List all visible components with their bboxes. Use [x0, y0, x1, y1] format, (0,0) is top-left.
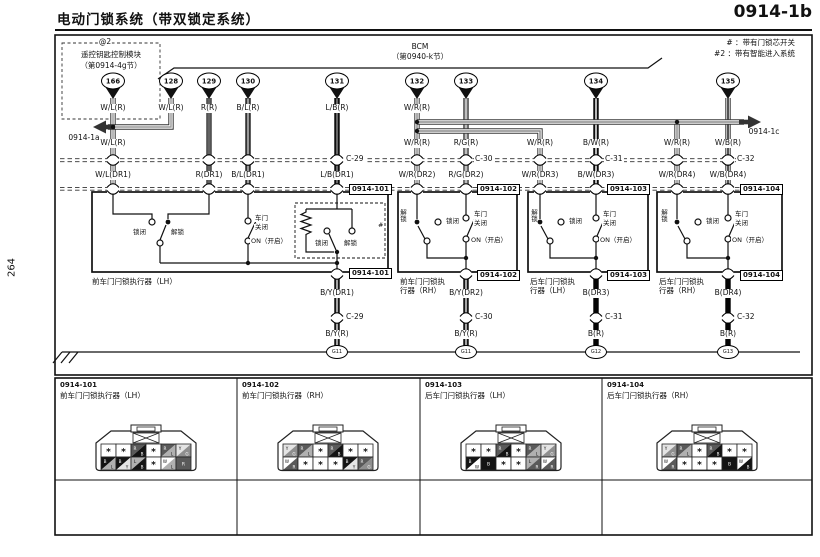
connector-pin-cell: * [466, 444, 481, 458]
wire-label: B/W(R) [582, 139, 610, 148]
connector-pin-cell: * [358, 444, 373, 458]
svg-text:W: W [739, 459, 743, 464]
actuator-caption-4b: 行器（RH） [659, 285, 700, 296]
door-switch-label: 关闭 [734, 220, 749, 227]
ground-point: G13 [717, 345, 739, 359]
connector-label: C-32 [736, 313, 756, 322]
switch-label-unlock: 解锁 [530, 209, 537, 222]
pin-129: 129 [197, 73, 221, 90]
connector-pin-cell: * [692, 457, 707, 471]
svg-text:*: * [727, 448, 732, 458]
inline-connector-icon [590, 269, 602, 280]
wire-label: W/R(R) [526, 139, 554, 148]
actuator-tag-top-2: 0914-102 [477, 184, 520, 195]
wire-label: B/Y(R) [324, 330, 349, 339]
connector-pin-cell: * [511, 457, 526, 471]
wire-label: W/B(DR4) [709, 171, 748, 180]
svg-text:W: W [475, 465, 479, 470]
pinout-name-3: 后车门闩锁执行器（LH） [425, 390, 510, 401]
connector-pin-cell: * [511, 444, 526, 458]
connector-pin-cell: WR [662, 457, 677, 470]
door-switch-label: 车门 [602, 211, 617, 218]
pin-133: 133 [454, 73, 478, 90]
switch-label-unlock: 解锁 [399, 209, 406, 222]
connector-pin-cell: * [692, 444, 707, 458]
pin-166: 166 [101, 73, 125, 90]
wire-label: R(DR1) [195, 171, 224, 180]
pinout-name-2: 前车门闩锁执行器（RH） [242, 390, 328, 401]
svg-text:G: G [367, 465, 370, 470]
wire-label: B(R) [719, 330, 737, 339]
connector-pin-cell: RB [328, 444, 343, 457]
pin-connector-triangle-icon [410, 88, 424, 99]
svg-text:B: B [469, 459, 472, 464]
svg-text:*: * [471, 448, 476, 458]
connector-pin-cell: LB [131, 457, 146, 470]
connector-pin-cell: B [481, 457, 496, 470]
connector-pin-cell: WR [283, 457, 298, 470]
pin-134: 134 [584, 73, 608, 90]
wire-label: W/R(DR4) [658, 171, 697, 180]
actuator-caption-3b: 行器（LH） [530, 285, 570, 296]
wire-label: B/Y(DR2) [448, 289, 484, 298]
svg-text:*: * [712, 461, 717, 471]
inline-connector-icon [411, 155, 423, 166]
svg-text:*: * [151, 448, 156, 458]
wire-label: W/R(DR3) [521, 171, 560, 180]
junction-dot [675, 120, 679, 124]
pin-connector-triangle-icon [241, 88, 255, 99]
inline-connector-icon [722, 269, 734, 280]
wire-label: R/G(R) [453, 139, 480, 148]
door-switch-label: 关闭 [473, 220, 488, 227]
legend-line-1: # ：带有门锁芯开关 [726, 37, 795, 48]
pin-connector-triangle-icon [459, 88, 473, 99]
inline-connector-icon [534, 155, 546, 166]
wire-label: L/B(DR1) [319, 171, 354, 180]
connector-pin-cell: BY [116, 457, 131, 470]
actuator-tag-bottom-2: 0914-102 [477, 270, 520, 281]
connector-label: C-31 [604, 155, 624, 164]
svg-text:Y: Y [285, 446, 289, 451]
svg-text:W: W [543, 459, 547, 464]
wire-label: W/L(DR1) [94, 171, 132, 180]
svg-text:*: * [363, 448, 368, 458]
connector-pin-cell: YG [541, 444, 556, 457]
svg-text:*: * [121, 448, 126, 458]
wire-label: W/R(R) [403, 104, 431, 113]
connector-pin-cell: * [313, 444, 328, 458]
junction-dot [726, 256, 730, 260]
svg-text:B: B [487, 462, 490, 468]
connector-diagram-3: **RB*RLYGBWB**LRWR [451, 424, 571, 474]
wire-label: W/L(R) [99, 139, 126, 148]
svg-text:*: * [318, 448, 323, 458]
connector-pin-cell: BL [101, 457, 116, 470]
connector-pin-cell: RB [131, 444, 146, 457]
pinout-name-1: 前车门闩锁执行器（LH） [60, 390, 145, 401]
wire-label: W/B(R) [714, 139, 742, 148]
svg-text:*: * [516, 448, 521, 458]
pin-connector-triangle-icon [106, 88, 120, 99]
connector-pin-cell: RB [707, 444, 722, 457]
bcm-section: （第0940-k节） [391, 53, 449, 62]
actuator-box-3 [528, 192, 648, 272]
connector-pin-cell: B [722, 457, 737, 470]
pinout-code-3: 0914-103 [425, 381, 462, 389]
actuator-caption-2b: 行器（RH） [400, 285, 441, 296]
junction-dot [594, 256, 598, 260]
svg-text:*: * [501, 461, 506, 471]
connector-pin-cell: * [146, 457, 161, 471]
svg-text:G: G [292, 452, 295, 457]
wire-label: B/W(DR3) [577, 171, 616, 180]
door-switch-label: 车门 [473, 211, 488, 218]
junction-dot [246, 261, 250, 265]
ref-right: 0914-1c [748, 128, 781, 137]
pinout-code-1: 0914-101 [60, 381, 97, 389]
inline-connector-icon [107, 184, 119, 195]
pin-128: 128 [159, 73, 183, 90]
door-switch-label: ON（开启） [731, 237, 769, 244]
title-underline [55, 29, 812, 31]
wire-label: L/B(R) [325, 104, 350, 113]
actuator-3-circuit [538, 192, 604, 272]
svg-text:R: R [499, 446, 502, 451]
svg-text:R: R [529, 446, 532, 451]
svg-text:B: B [141, 452, 144, 457]
remote-module-name: 遥控钥匙控制模块 [80, 51, 142, 60]
connector-label: C-29 [345, 313, 365, 322]
ref-left: 0914-1a [67, 134, 100, 143]
wire-label: B/Y(R) [453, 330, 478, 339]
wire-label: B/L(R) [236, 104, 261, 113]
svg-text:*: * [151, 461, 156, 471]
connector-pin-cell: * [298, 457, 313, 471]
svg-text:B: B [141, 465, 144, 470]
svg-text:R: R [301, 446, 304, 451]
svg-text:B: B [506, 452, 509, 457]
key-switch-label-unlock: 解锁 [343, 240, 358, 247]
svg-text:R: R [672, 465, 675, 470]
wire-label: W/R(DR2) [398, 171, 437, 180]
connector-pin-cell: * [101, 444, 116, 458]
door-switch-label: ON（开启） [250, 238, 288, 245]
connector-pin-cell: BY [343, 457, 358, 470]
svg-text:*: * [697, 448, 702, 458]
page-code: 0914-1b [734, 2, 812, 22]
connector-pin-cell: * [737, 444, 752, 458]
svg-text:*: * [318, 461, 323, 471]
connector-pin-cell: RL [677, 444, 692, 457]
inline-connector-icon [203, 155, 215, 166]
connector-pin-cell: YG [662, 444, 677, 457]
inline-connector-icon [411, 184, 423, 195]
svg-text:R: R [551, 465, 554, 470]
ground-point: G11 [455, 345, 477, 359]
inline-connector-symbols [107, 155, 734, 324]
connector-pin-cell: * [146, 444, 161, 458]
junction-dot [335, 261, 339, 265]
connector-pin-cell: LR [526, 457, 541, 470]
hash-mark: # [377, 222, 384, 229]
svg-text:*: * [486, 448, 491, 458]
inline-connector-icon [331, 155, 343, 166]
svg-text:B: B [717, 452, 720, 457]
ground-point: G12 [585, 345, 607, 359]
svg-text:Y: Y [352, 465, 356, 470]
wire-label: W/R(R) [663, 139, 691, 148]
svg-text:R: R [331, 446, 334, 451]
switch-label-lock: 锁闭 [568, 218, 583, 225]
actuator-tag-top-4: 0914-104 [740, 184, 783, 195]
door-switch-label: 关闭 [254, 224, 269, 231]
switch-label-lock: 锁闭 [445, 218, 460, 225]
door-switch-label: ON（开启） [599, 237, 637, 244]
svg-text:G: G [550, 452, 553, 457]
inline-connector-icon [460, 184, 472, 195]
svg-text:G: G [671, 452, 674, 457]
pin-131: 131 [325, 73, 349, 90]
connector-pin-cell: YG [283, 444, 298, 457]
pinout-code-2: 0914-102 [242, 381, 279, 389]
svg-text:R: R [710, 446, 713, 451]
connector-pin-cell: RL [526, 444, 541, 457]
connector-pin-cell: RL [161, 444, 176, 457]
inline-connector-icon [590, 313, 602, 324]
connector-pin-cell: * [116, 444, 131, 458]
pin-connector-triangle-icon [202, 88, 216, 99]
pin-triangles [106, 88, 735, 99]
switch-label-lock: 锁闭 [705, 218, 720, 225]
connector-pin-cell: * [722, 444, 737, 458]
actuator-tag-bottom-1: 0914-101 [349, 268, 392, 279]
wire-label: B/Y(DR1) [319, 289, 355, 298]
connector-pin-cell: WL [161, 457, 176, 470]
pinout-code-4: 0914-104 [607, 381, 644, 389]
actuator-tag-bottom-3: 0914-103 [607, 270, 650, 281]
connector-pin-cell: YG [176, 444, 191, 457]
bcm-name: BCM [411, 43, 430, 52]
actuator-tag-bottom-4: 0914-104 [740, 270, 783, 281]
svg-text:*: * [303, 461, 308, 471]
connector-pin-cell: * [496, 457, 511, 471]
svg-text:*: * [106, 448, 111, 458]
svg-text:R: R [536, 465, 539, 470]
inline-connector-icon [460, 269, 472, 280]
connector-pin-cell: RG [358, 457, 373, 470]
actuator-4-circuit [675, 192, 736, 272]
inline-connector-icon [722, 313, 734, 324]
connector-label: C-29 [345, 155, 365, 164]
actuator-1-circuit [113, 192, 355, 272]
remote-module-section: （第0914-4g节） [79, 62, 142, 71]
inline-connector-icon [590, 155, 602, 166]
actuator-tag-top-3: 0914-103 [607, 184, 650, 195]
svg-text:B: B [119, 459, 122, 464]
connector-pin-cell: * [343, 444, 358, 458]
wire-label: W/L(R) [99, 104, 126, 113]
svg-text:R: R [293, 465, 296, 470]
page-title: 电动门锁系统（带双锁定系统） [57, 8, 260, 28]
inline-connector-icon [331, 269, 343, 280]
inline-connector-icon [671, 155, 683, 166]
junction-dot [415, 129, 419, 133]
connector-diagram-2: YGRL*RB**WR***BYRG [268, 424, 388, 474]
door-switch-label: 车门 [254, 215, 269, 222]
inline-connector-icon [722, 184, 734, 195]
side-page-number: 264 [7, 248, 18, 288]
inline-connector-icon [460, 313, 472, 324]
actuator-box-2 [398, 192, 517, 272]
switch-label-unlock: 解锁 [170, 229, 185, 236]
svg-text:R: R [680, 446, 683, 451]
connector-pin-cell: * [707, 457, 722, 471]
connector-label: C-32 [736, 155, 756, 164]
actuator-box-4 [657, 192, 782, 272]
svg-text:Y: Y [178, 446, 182, 451]
switch-label-unlock: 解锁 [660, 209, 667, 222]
connector-pin-cell: * [313, 457, 328, 471]
svg-text:B: B [104, 459, 107, 464]
remote-module-badge: @2 [98, 38, 112, 47]
pin-connector-triangle-icon [330, 88, 344, 99]
pinout-name-4: 后车门闩锁执行器（RH） [607, 390, 693, 401]
connector-pin-cell: * [677, 457, 692, 471]
svg-text:*: * [348, 448, 353, 458]
junction-dot [111, 125, 115, 129]
wire-label: B/L(DR1) [230, 171, 265, 180]
svg-text:Y: Y [543, 446, 547, 451]
svg-text:Y: Y [664, 446, 668, 451]
connector-label: C-31 [604, 313, 624, 322]
svg-text:W: W [285, 459, 289, 464]
svg-text:R: R [182, 462, 185, 468]
pin-130: 130 [236, 73, 260, 90]
ground-point: G11 [326, 345, 348, 359]
inline-connector-icon [203, 184, 215, 195]
connector-pin-cell: * [481, 444, 496, 458]
wire-label: W/L(R) [157, 104, 184, 113]
wire-label: B(DR4) [714, 289, 743, 298]
switch-label-lock: 锁闭 [132, 229, 147, 236]
pin-connector-triangle-icon [164, 88, 178, 99]
wire-label: W/R(R) [403, 139, 431, 148]
svg-text:Y: Y [125, 465, 129, 470]
inline-connector-icon [722, 155, 734, 166]
svg-text:R: R [361, 459, 364, 464]
connector-pin-cell: RB [496, 444, 511, 457]
actuator-caption-1: 前车门闩锁执行器（LH） [92, 276, 177, 287]
connector-diagram-1: **RB*RLYGBLBYLB*WLR [86, 424, 206, 474]
wire-label: B(DR3) [582, 289, 611, 298]
pin-connector-triangle-icon [721, 88, 735, 99]
svg-text:B: B [747, 465, 750, 470]
svg-text:*: * [682, 461, 687, 471]
svg-text:B: B [728, 462, 731, 468]
svg-text:*: * [697, 461, 702, 471]
legend-line-2: #2 ：带有智能进入系统 [714, 48, 795, 59]
actuator-tag-top-1: 0914-101 [349, 184, 392, 195]
door-switch-label: 车门 [734, 211, 749, 218]
svg-text:R: R [134, 446, 137, 451]
wire-label: B(R) [587, 330, 605, 339]
junction-dot [464, 256, 468, 260]
svg-text:B: B [346, 459, 349, 464]
connector-pin-cell: RL [298, 444, 313, 457]
key-switch-label-lock: 锁闭 [314, 240, 329, 247]
pin-132: 132 [405, 73, 429, 90]
inline-connector-icon [331, 313, 343, 324]
svg-text:R: R [164, 446, 167, 451]
connector-label: C-30 [474, 155, 494, 164]
connector-pin-cell: WR [541, 457, 556, 470]
inline-connector-icon [590, 184, 602, 195]
svg-text:G: G [185, 452, 188, 457]
connector-pin-cell: R [176, 457, 191, 470]
inline-connector-icon [331, 184, 343, 195]
inline-connector-icon [534, 184, 546, 195]
connector-label: C-30 [474, 313, 494, 322]
svg-text:*: * [516, 461, 521, 471]
svg-text:*: * [742, 448, 747, 458]
wiring-diagram-page: 电动门锁系统（带双锁定系统） 0914-1b 264 # ：带有门锁芯开关 #2… [0, 0, 820, 557]
connector-pin-cell: WB [737, 457, 752, 470]
svg-text:*: * [333, 461, 338, 471]
connector-pin-cell: * [328, 457, 343, 471]
svg-text:B: B [338, 452, 341, 457]
pin-135: 135 [716, 73, 740, 90]
connector-diagram-4: YGRL*RB**WR***BWB [647, 424, 767, 474]
junction-dot [415, 120, 419, 124]
connector-pin-cell: BW [466, 457, 481, 470]
inline-connector-icon [671, 184, 683, 195]
inline-connector-icon [242, 155, 254, 166]
wire-label: R(R) [200, 104, 218, 113]
pin-connector-triangle-icon [589, 88, 603, 99]
ground-symbol-icon [53, 352, 78, 363]
svg-text:W: W [163, 459, 167, 464]
inline-connector-icon [242, 184, 254, 195]
svg-text:W: W [664, 459, 668, 464]
inline-connector-icon [460, 155, 472, 166]
inline-connector-icon [107, 155, 119, 166]
door-switch-label: ON（开启） [470, 237, 508, 244]
wire-label: R/G(DR2) [447, 171, 484, 180]
door-switch-label: 关闭 [602, 220, 617, 227]
